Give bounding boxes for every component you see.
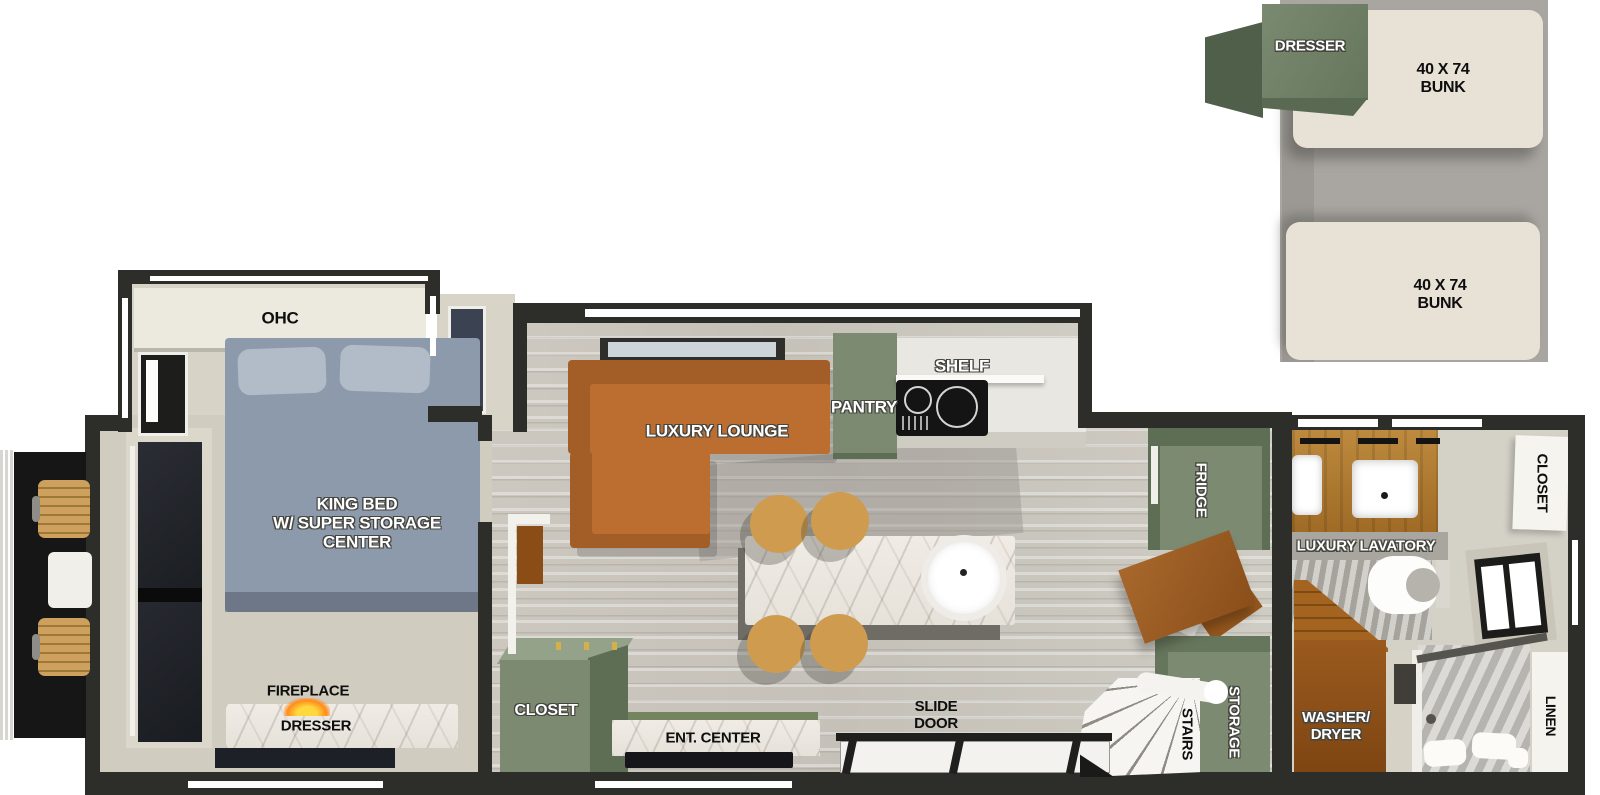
loft-dresser-label: DRESSER [1275, 39, 1345, 56]
deck-chair-2 [38, 618, 90, 676]
wall-living-slide-right [1078, 303, 1092, 420]
vanity-sink-right [1352, 460, 1418, 518]
living-closet-label: CLOSET [514, 702, 577, 720]
sink-faucet-dot [960, 569, 967, 576]
window-strip-right-wall [1572, 540, 1578, 625]
sectional-chaise-seat [592, 452, 710, 534]
bedroom-tv [215, 748, 395, 768]
bath-partition-niche [1394, 664, 1416, 704]
cooktop-burner-large [936, 386, 978, 428]
slide-door-label: SLIDE DOOR [914, 699, 958, 733]
bed-pillow-left [237, 346, 327, 395]
bunk-top-label: 40 X 74 BUNK [1416, 61, 1469, 97]
storage-label: STORAGE [1225, 686, 1242, 758]
slide-door-rail [836, 733, 1112, 741]
bed-pillow-right [339, 344, 431, 393]
window-strip-bedroom-slide-left [122, 298, 128, 418]
left-wall-ledge-side [508, 514, 516, 654]
shelf-label: SHELF [935, 356, 989, 375]
front-window-divider [138, 588, 202, 602]
stairs-label: STAIRS [1178, 708, 1195, 760]
window-strip-bedroom-slide-right [430, 296, 436, 356]
loft-dresser-side [1205, 22, 1263, 118]
ent-center-label: ENT. CENTER [665, 731, 760, 748]
island-stool-2 [811, 492, 869, 550]
fridge-label: FRIDGE [1192, 463, 1209, 518]
ent-center-tv [625, 752, 793, 768]
ohc-label: OHC [262, 308, 299, 327]
deck-table [48, 552, 92, 608]
sectional-seat [590, 384, 830, 454]
wall-bedroom-divider-upper [478, 415, 492, 441]
bath-ceiling-vents [1300, 438, 1440, 444]
wood-niche [517, 526, 543, 584]
front-window-sill [130, 446, 135, 736]
wall-under-side-window [428, 406, 482, 422]
front-window-upper-pane [138, 442, 202, 588]
shower-seat-1 [1423, 739, 1467, 768]
cooktop-burner-small [904, 386, 932, 414]
island-sink [921, 535, 1007, 621]
island-stool-1 [750, 495, 808, 553]
pantry-label: PANTRY [831, 397, 897, 416]
window-strip-bath-top-2 [1392, 419, 1482, 427]
window-strip-bottom-living [595, 781, 792, 788]
shower-drain [1426, 714, 1436, 724]
wall-bedroom-divider-lower [478, 522, 492, 775]
bedroom-dresser-label: DRESSER [281, 719, 351, 736]
wall-main-top-right [1078, 412, 1292, 428]
fireplace-label: FIREPLACE [267, 684, 349, 701]
fridge-front [1160, 446, 1262, 550]
pantry-cabinet [833, 333, 897, 459]
front-window-lower-pane [138, 602, 202, 742]
fridge-highlight [1151, 446, 1158, 504]
island-stool-4 [810, 614, 868, 672]
deck-chair-2-arm [32, 634, 40, 660]
luxury-lounge-label: LUXURY LOUNGE [646, 421, 789, 440]
vanity-faucet-dot [1381, 492, 1388, 499]
window-strip-bottom-bedroom [188, 781, 383, 788]
island-stool-3 [747, 615, 805, 673]
fireplace-flame [284, 698, 330, 716]
vanity-sink-left [1292, 455, 1322, 515]
window-strip-bedroom-slide-top [150, 276, 428, 281]
bath-closet-label: CLOSET [1533, 453, 1550, 512]
bedroom-slide-window-pane [146, 360, 158, 422]
window-strip-bath-top-1 [1298, 419, 1378, 427]
linen-label: LINEN [1542, 696, 1558, 737]
deck-rails [0, 450, 14, 740]
bedroom-doorway-gap [478, 438, 492, 523]
deck-chair-1-arm [32, 496, 40, 522]
lounge-window-pane [608, 342, 776, 357]
window-strip-living-slide-top [585, 309, 1080, 317]
deck-chair-1 [38, 480, 90, 538]
king-bed-label: KING BED W/ SUPER STORAGE CENTER [273, 494, 441, 551]
luxury-lavatory-label: LUXURY LAVATORY [1297, 539, 1436, 556]
wall-bath-divider [1272, 412, 1292, 775]
washer-dryer-cabinet [1294, 640, 1386, 774]
cooktop-grate-dots [902, 416, 928, 430]
washer-dryer-label: WASHER/ DRYER [1302, 710, 1370, 744]
bed-foot-shadow [225, 592, 480, 612]
closet-hinge-dots [556, 642, 622, 650]
floorplan: OHC KING BED W/ SUPER STORAGE CENTER FIR… [0, 0, 1600, 795]
bunk-bottom-label: 40 X 74 BUNK [1413, 277, 1466, 313]
shower-seat-3 [1508, 748, 1528, 768]
toilet-seat-inner [1406, 568, 1440, 602]
